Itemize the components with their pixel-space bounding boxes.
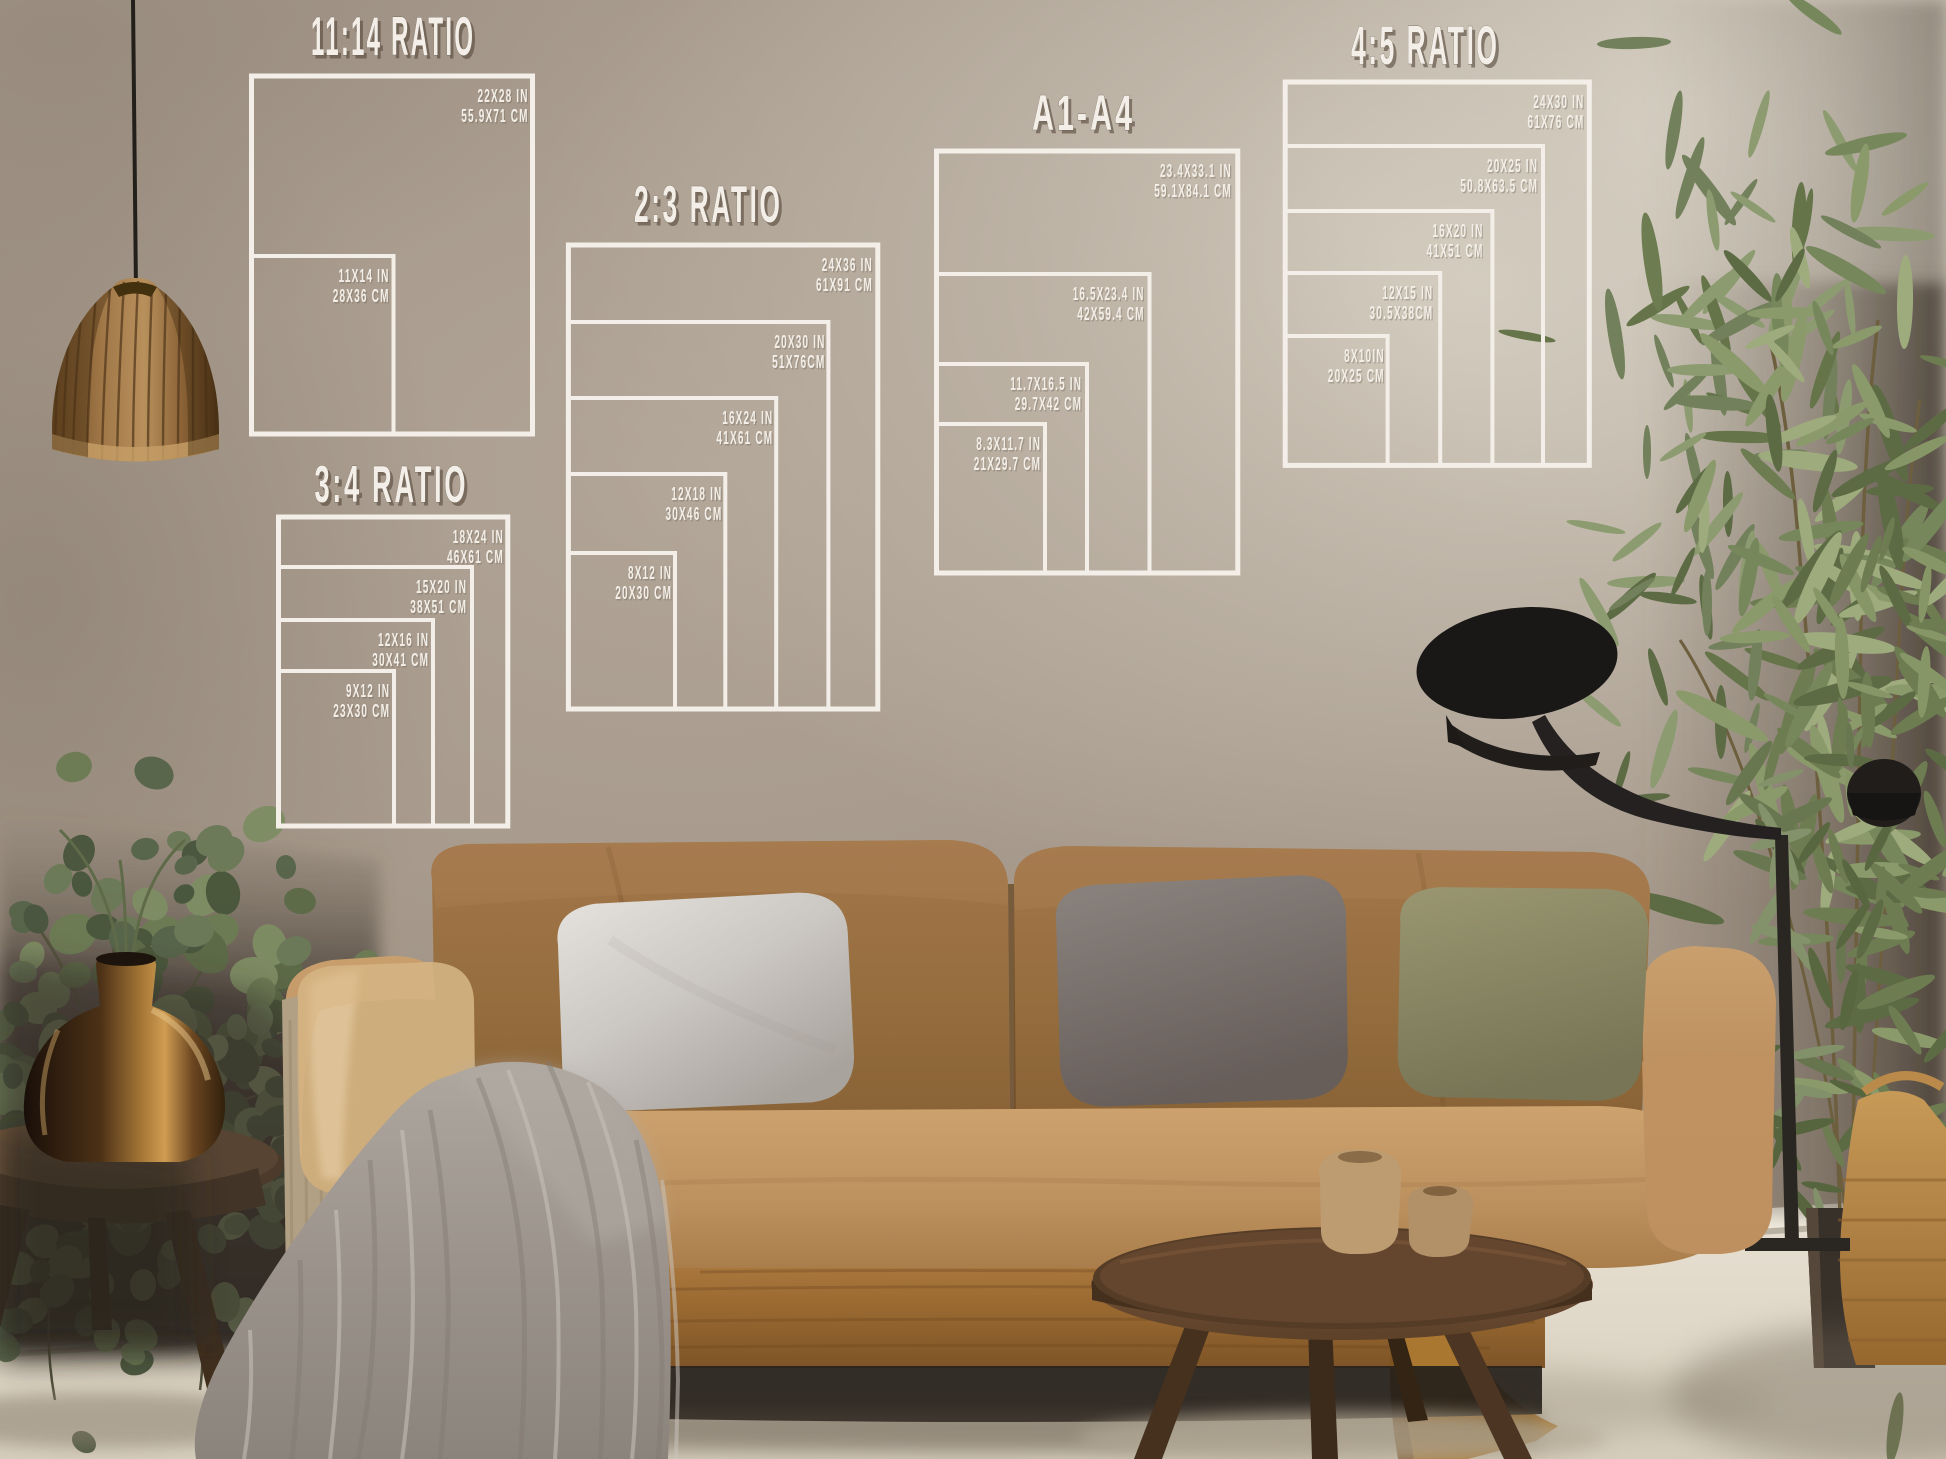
svg-text:28X36 CM: 28X36 CM (333, 286, 390, 307)
svg-text:59.1X84.1 CM: 59.1X84.1 CM (1154, 181, 1232, 202)
svg-text:61X91 CM: 61X91 CM (816, 275, 873, 296)
svg-text:61X76 CM: 61X76 CM (1528, 112, 1585, 133)
svg-text:8.3X11.7 IN: 8.3X11.7 IN (976, 434, 1041, 455)
svg-text:38X51 CM: 38X51 CM (410, 597, 467, 618)
svg-text:41X51 CM: 41X51 CM (1427, 241, 1484, 262)
svg-text:55.9X71 CM: 55.9X71 CM (461, 106, 528, 127)
svg-text:20X30 IN: 20X30 IN (774, 332, 825, 353)
svg-text:4:5 RATIO: 4:5 RATIO (1351, 16, 1499, 77)
svg-text:16X20 IN: 16X20 IN (1432, 221, 1483, 242)
svg-text:24X36 IN: 24X36 IN (822, 255, 873, 276)
svg-text:8X12 IN: 8X12 IN (628, 563, 672, 584)
svg-text:16X24 IN: 16X24 IN (722, 408, 773, 429)
svg-text:23.4X33.1 IN: 23.4X33.1 IN (1160, 161, 1232, 182)
svg-text:12X15 IN: 12X15 IN (1382, 283, 1433, 304)
svg-text:20X25 CM: 20X25 CM (1328, 366, 1385, 387)
svg-text:24X30 IN: 24X30 IN (1533, 92, 1584, 113)
svg-text:20X30 CM: 20X30 CM (615, 583, 672, 604)
svg-text:2:3 RATIO: 2:3 RATIO (634, 175, 782, 233)
svg-text:42X59.4 CM: 42X59.4 CM (1077, 304, 1144, 325)
svg-text:12X18 IN: 12X18 IN (671, 484, 722, 505)
svg-text:50.8X63.5 CM: 50.8X63.5 CM (1460, 176, 1538, 197)
svg-text:41X61 CM: 41X61 CM (716, 428, 773, 449)
svg-text:A1-A4: A1-A4 (1032, 85, 1135, 141)
svg-text:9X12 IN: 9X12 IN (346, 681, 390, 702)
svg-text:11.7X16.5 IN: 11.7X16.5 IN (1010, 374, 1082, 395)
svg-text:8X10IN: 8X10IN (1344, 346, 1385, 367)
svg-text:3:4 RATIO: 3:4 RATIO (315, 454, 469, 513)
svg-text:23X30 CM: 23X30 CM (333, 701, 390, 722)
svg-text:46X61 CM: 46X61 CM (447, 547, 504, 568)
svg-text:30.5X38CM: 30.5X38CM (1370, 303, 1434, 324)
svg-text:15X20 IN: 15X20 IN (416, 577, 467, 598)
svg-text:18X24 IN: 18X24 IN (453, 527, 504, 548)
svg-text:51X76CM: 51X76CM (772, 352, 825, 373)
svg-text:30X41 CM: 30X41 CM (372, 650, 429, 671)
svg-text:12X16 IN: 12X16 IN (378, 630, 429, 651)
svg-text:22X28 IN: 22X28 IN (478, 86, 529, 107)
svg-text:29.7X42 CM: 29.7X42 CM (1015, 394, 1082, 415)
svg-text:11:14 RATIO: 11:14 RATIO (311, 6, 475, 67)
svg-text:30X46 CM: 30X46 CM (666, 504, 723, 525)
svg-text:11X14 IN: 11X14 IN (339, 266, 390, 287)
svg-text:21X29.7 CM: 21X29.7 CM (974, 454, 1041, 475)
svg-text:20X25 IN: 20X25 IN (1487, 156, 1538, 177)
svg-text:16.5X23.4 IN: 16.5X23.4 IN (1073, 284, 1145, 305)
